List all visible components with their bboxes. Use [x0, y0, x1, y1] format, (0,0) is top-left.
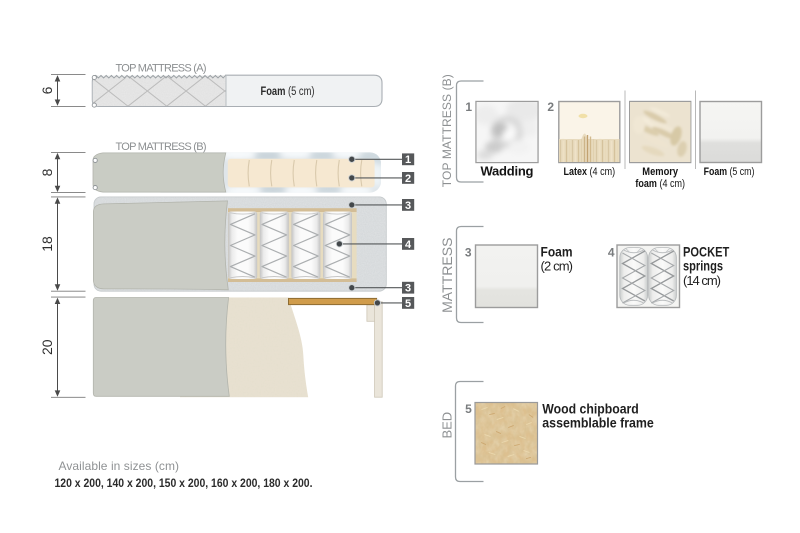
- svg-text:3: 3: [405, 283, 411, 295]
- svg-text:Foam: Foam: [541, 244, 573, 260]
- svg-text:120 x 200, 140 x 200, 150 x 20: 120 x 200, 140 x 200, 150 x 200, 160 x 2…: [55, 478, 313, 490]
- svg-text:3: 3: [405, 200, 411, 212]
- svg-text:Latex (4 cm): Latex (4 cm): [564, 166, 616, 178]
- svg-text:Foam (5 cm): Foam (5 cm): [260, 85, 314, 98]
- svg-text:1: 1: [405, 154, 411, 166]
- svg-text:Wadding: Wadding: [481, 164, 534, 179]
- svg-text:2: 2: [405, 173, 411, 185]
- svg-text:18: 18: [39, 236, 55, 252]
- svg-text:BED: BED: [440, 412, 455, 439]
- svg-text:(14 cm): (14 cm): [683, 273, 721, 288]
- svg-text:5: 5: [465, 402, 472, 416]
- svg-text:TOP MATTRESS (A): TOP MATTRESS (A): [116, 62, 207, 74]
- svg-text:20: 20: [39, 339, 55, 355]
- svg-text:5: 5: [405, 298, 411, 310]
- svg-text:4: 4: [405, 239, 412, 251]
- svg-text:(2 cm): (2 cm): [541, 259, 574, 274]
- svg-text:Foam (5 cm): Foam (5 cm): [704, 166, 755, 178]
- svg-text:Available in sizes (cm): Available in sizes (cm): [59, 459, 180, 473]
- svg-text:foam (4 cm): foam (4 cm): [635, 178, 685, 190]
- svg-text:3: 3: [465, 245, 472, 259]
- svg-text:assemblable frame: assemblable frame: [542, 415, 654, 431]
- svg-text:Memory: Memory: [642, 166, 678, 178]
- svg-text:1: 1: [465, 100, 472, 114]
- svg-text:6: 6: [39, 86, 55, 94]
- svg-text:MATTRESS: MATTRESS: [439, 238, 455, 313]
- svg-text:springs: springs: [683, 258, 723, 274]
- svg-text:2: 2: [547, 100, 554, 114]
- svg-text:4: 4: [608, 245, 615, 259]
- svg-text:8: 8: [39, 168, 55, 176]
- svg-text:TOP MATTRESS (B): TOP MATTRESS (B): [116, 141, 207, 153]
- svg-text:TOP MATTRESS (B): TOP MATTRESS (B): [440, 74, 454, 187]
